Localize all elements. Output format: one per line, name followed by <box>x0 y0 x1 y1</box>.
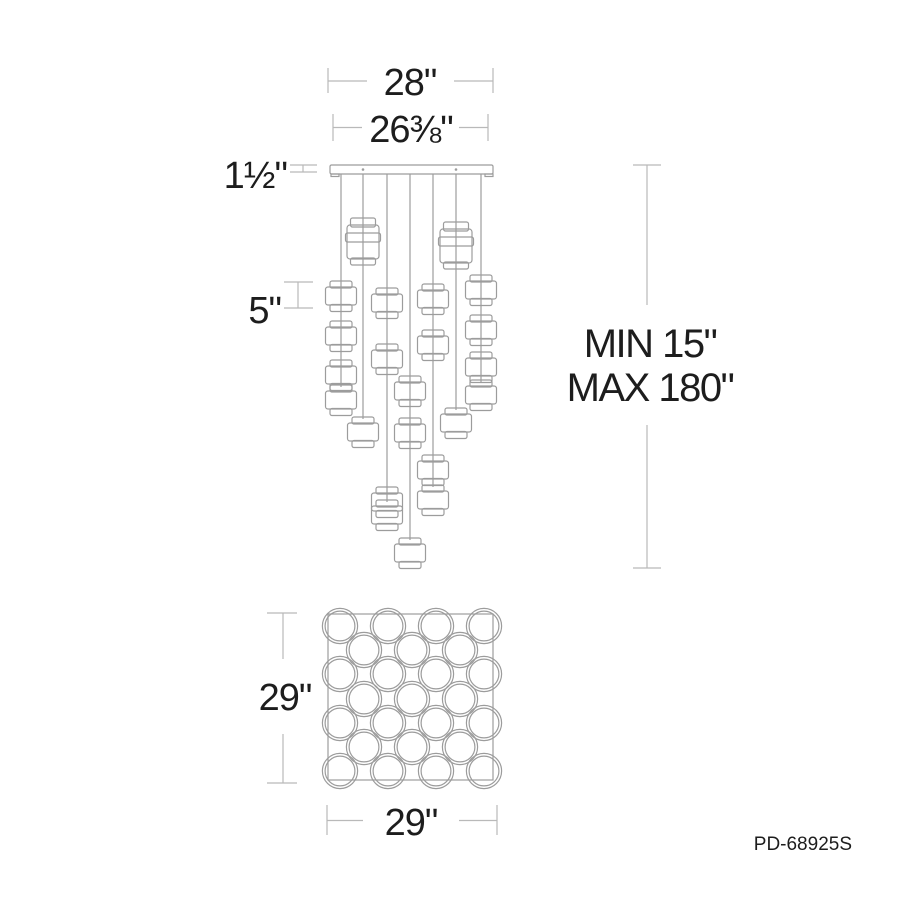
shade-outer-ring <box>466 753 501 788</box>
canopy-plan-view <box>322 608 501 788</box>
shade-plan-circle <box>394 729 429 764</box>
dimension-plan-depth: 29" <box>259 613 312 783</box>
shade-inner-ring <box>421 708 451 738</box>
spec-sheet-page: 28" 26⅜" 1½" 5" MIN 15" MAX 180" <box>0 0 900 900</box>
shade-outer-ring <box>442 681 477 716</box>
shade-inner-ring <box>373 659 403 689</box>
pendant-shade <box>466 380 497 411</box>
shade-outer-ring <box>466 705 501 740</box>
canopy-end-tab <box>485 174 493 177</box>
shade-inner-ring <box>349 684 379 714</box>
plan-depth-label: 29" <box>259 677 312 719</box>
suspension-max-label: MAX 180" <box>567 366 734 410</box>
shade-plan-circle <box>346 681 381 716</box>
shade-inner-ring <box>469 756 499 786</box>
shade-inner-ring <box>469 611 499 641</box>
shade-plan-circle <box>370 705 405 740</box>
shade-outer-ring <box>418 753 453 788</box>
shade-inner-ring <box>349 635 379 665</box>
shade-body <box>418 491 449 509</box>
dimension-canopy-width: 28" <box>328 62 493 104</box>
canopy-end-tab <box>331 174 339 177</box>
shade-plan-circle <box>346 729 381 764</box>
dimension-suspension: MIN 15" MAX 180" <box>567 165 734 568</box>
shade-inner-ring <box>397 684 427 714</box>
shade-body <box>348 423 379 441</box>
pendant-shade <box>441 408 472 439</box>
shade-inner-ring <box>397 635 427 665</box>
shade-inner-ring <box>445 635 475 665</box>
pendant-shade <box>326 385 357 416</box>
wire-span-label: 26⅜" <box>369 109 452 151</box>
shade-inner-ring <box>421 659 451 689</box>
shade-plan-circle <box>370 753 405 788</box>
pendant-shade <box>418 485 449 516</box>
dimension-canopy-height: 1½" <box>224 155 317 197</box>
shade-body <box>441 414 472 432</box>
shade-plan-circle <box>466 705 501 740</box>
shade-inner-ring <box>469 659 499 689</box>
shade-body <box>395 544 426 562</box>
canopy-screw <box>362 168 365 171</box>
pendant-shade <box>439 222 474 269</box>
shade-inner-ring <box>445 732 475 762</box>
canopy-width-label: 28" <box>384 62 437 104</box>
shade-inner-ring <box>349 732 379 762</box>
shade-outer-ring <box>418 705 453 740</box>
plan-width-label: 29" <box>385 802 438 844</box>
shade-plan-circle <box>442 632 477 667</box>
shade-inner-ring <box>445 684 475 714</box>
dimension-plan-width: 29" <box>327 802 497 844</box>
shade-outer-ring <box>346 729 381 764</box>
canopy-height-label: 1½" <box>224 155 287 197</box>
shade-plan-circle <box>418 705 453 740</box>
shade-inner-ring <box>373 756 403 786</box>
suspension-min-label: MIN 15" <box>584 322 717 366</box>
shade-inner-ring <box>373 611 403 641</box>
shade-plan-circle <box>442 729 477 764</box>
product-code: PD-68925S <box>754 834 852 855</box>
shade-inner-ring <box>421 756 451 786</box>
shade-outer-ring <box>346 632 381 667</box>
shade-outer-ring <box>442 632 477 667</box>
spec-diagram: 28" 26⅜" 1½" 5" MIN 15" MAX 180" <box>0 0 900 900</box>
dimension-pendant-height: 5" <box>248 282 313 332</box>
pendant-height-label: 5" <box>248 290 281 332</box>
shade-inner-ring <box>325 611 355 641</box>
shade-outer-ring <box>394 632 429 667</box>
shade-outer-ring <box>346 681 381 716</box>
pendant-shade <box>348 417 379 448</box>
shade-outer-ring <box>394 681 429 716</box>
shade-outer-ring <box>370 705 405 740</box>
pendant-side-view <box>326 165 497 569</box>
shade-plan-circle <box>394 632 429 667</box>
shade-inner-ring <box>325 659 355 689</box>
pendant-shade <box>346 218 381 265</box>
shade-body <box>466 386 497 404</box>
shade-inner-ring <box>397 732 427 762</box>
shade-plan-circle <box>418 753 453 788</box>
shade-outer-ring <box>394 729 429 764</box>
shade-body <box>326 391 357 409</box>
dimension-wire-span: 26⅜" <box>333 109 488 151</box>
shade-inner-ring <box>373 708 403 738</box>
shade-inner-ring <box>325 756 355 786</box>
canopy-bar <box>330 165 493 174</box>
shade-plan-circle <box>346 632 381 667</box>
shade-plan-circle <box>394 681 429 716</box>
shade-outer-ring <box>442 729 477 764</box>
shade-plan-circle <box>466 753 501 788</box>
shade-inner-ring <box>421 611 451 641</box>
shade-outer-ring <box>370 753 405 788</box>
shade-plan-circle <box>442 681 477 716</box>
pendant-shade <box>395 538 426 569</box>
shade-inner-ring <box>325 708 355 738</box>
shade-inner-ring <box>469 708 499 738</box>
canopy-screw <box>455 168 458 171</box>
